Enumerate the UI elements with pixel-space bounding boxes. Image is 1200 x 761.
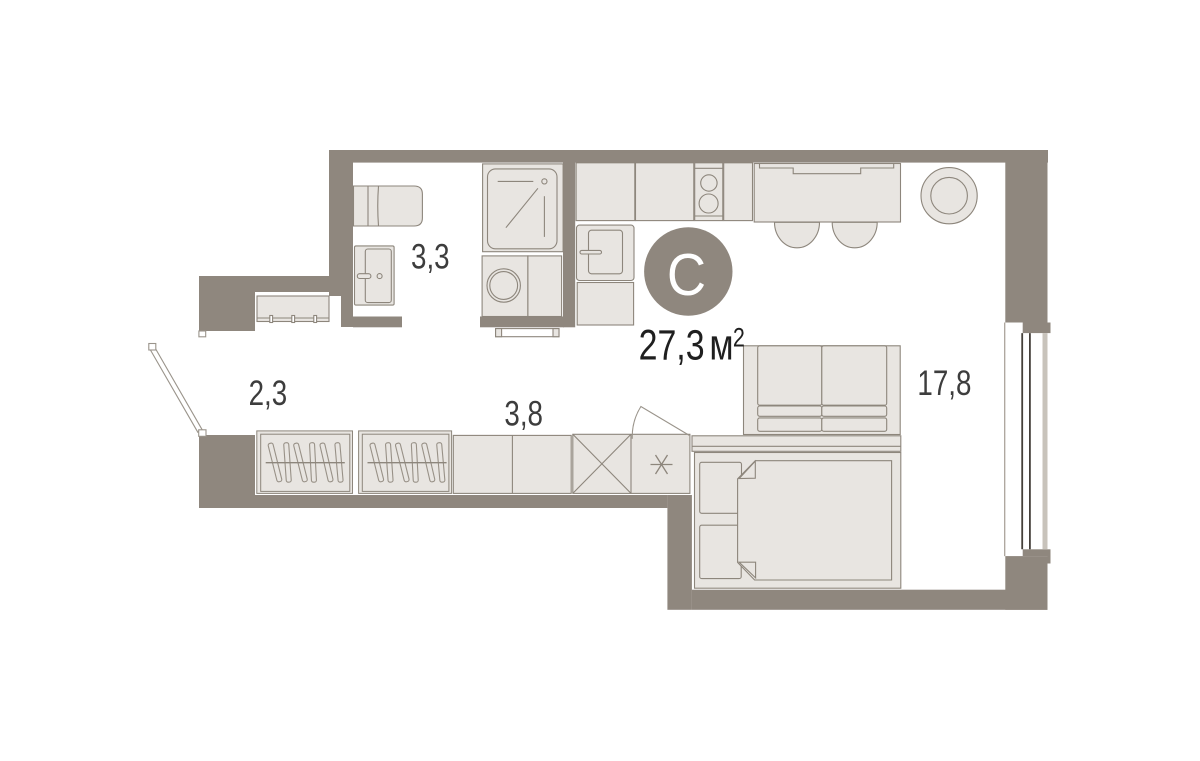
svg-text:17,8: 17,8 bbox=[917, 362, 971, 402]
svg-text:27,3м2: 27,3м2 bbox=[639, 321, 745, 370]
svg-text:3,8: 3,8 bbox=[504, 393, 543, 433]
svg-text:3,3: 3,3 bbox=[411, 236, 450, 276]
svg-text:2,3: 2,3 bbox=[249, 372, 288, 412]
svg-text:С: С bbox=[667, 243, 706, 309]
